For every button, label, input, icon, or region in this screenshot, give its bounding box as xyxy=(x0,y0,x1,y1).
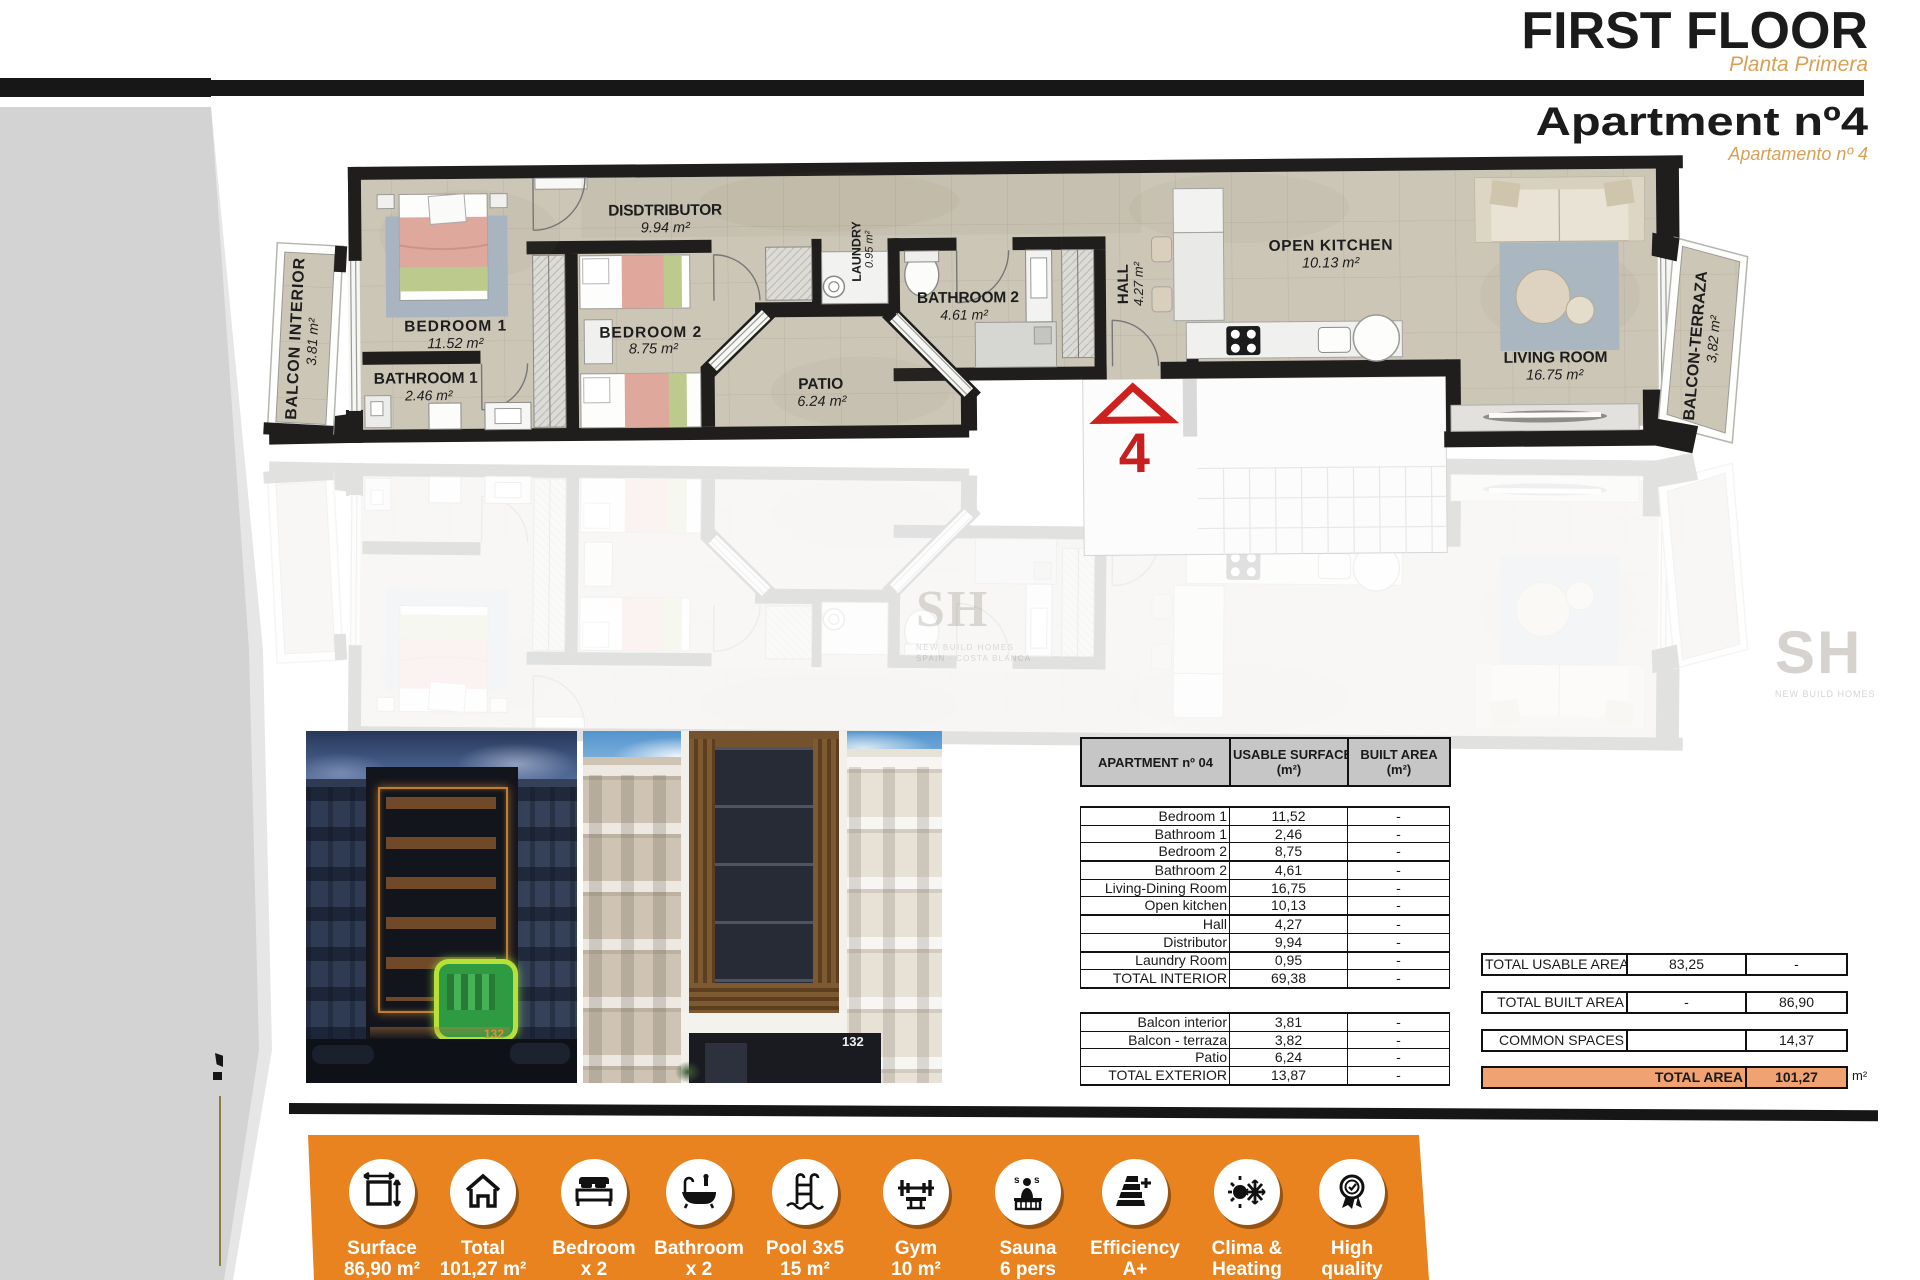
svg-text:s: s xyxy=(1014,1175,1020,1186)
svg-text:s: s xyxy=(1034,1175,1040,1186)
svg-text:4: 4 xyxy=(1118,421,1150,484)
